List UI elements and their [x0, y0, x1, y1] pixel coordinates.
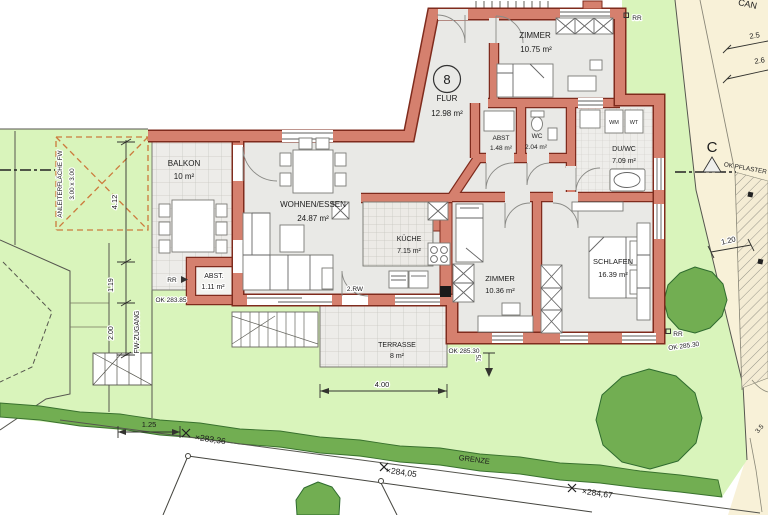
room-area-duwc: 7.09 m²: [612, 158, 636, 165]
dimension-2-5: 2.5: [749, 30, 761, 41]
room-area-abst2: 1.48 m²: [490, 145, 513, 152]
stove-icon: [428, 243, 450, 265]
room-label-wohnen: WOHNEN/ESSEN: [280, 200, 346, 209]
terrasse-floor: [320, 305, 447, 367]
room-label-balkon: BALKON: [168, 159, 201, 168]
door-label-rw: 2.RW: [347, 286, 364, 293]
dimension-1-19: 1.19: [108, 278, 115, 292]
room-label-wc: WC: [532, 133, 543, 140]
tree-icon: [296, 482, 340, 515]
room-area-balkon: 10 m²: [174, 172, 195, 181]
room-area-kueche: 7.15 m²: [397, 248, 421, 255]
dimension-4-12: 4.12: [110, 195, 119, 210]
rr-label-right: RR: [673, 331, 683, 338]
terrace-stair: [232, 312, 318, 347]
elevation-point-3: ×284,67: [581, 486, 613, 500]
wardrobe-icon: [453, 264, 474, 302]
apartment-number: 8: [443, 72, 450, 87]
anleiter-line1: ANLEITERFLÄCHE FW: [56, 150, 64, 217]
room-area-schlafen: 16.39 m²: [598, 270, 628, 279]
dimension-4-00: 4.00: [375, 380, 390, 389]
survey-mark-icon: [757, 259, 763, 265]
room-label-duwc: DU/WC: [612, 146, 636, 153]
room-area-flur: 12.98 m²: [431, 109, 463, 118]
dimension-2-00: 2.00: [108, 326, 115, 340]
wardrobe-icon: [556, 18, 613, 34]
elevation-ok-285-30-a: OK 285.30: [448, 348, 479, 355]
survey-mark-icon: [747, 192, 753, 198]
path-label-fw-zugang: FW-ZUGANG: [134, 310, 141, 353]
column: [440, 286, 451, 297]
room-area-wc: 2.04 m²: [525, 144, 548, 151]
room-label-zimmer2: ZIMMER: [485, 274, 515, 283]
wardrobe-icon: [541, 265, 562, 333]
room-area-zimmer1: 10.75 m²: [520, 45, 552, 54]
room-area-zimmer2: 10.36 m²: [485, 286, 515, 295]
room-label-zimmer1: ZIMMER: [519, 31, 551, 40]
rr-label-left: RR: [167, 277, 177, 284]
room-label-abst2: ABST: [493, 135, 510, 142]
dimension-1-25: 1.25: [142, 420, 157, 429]
appliance-wm: WM: [609, 120, 619, 126]
anleiter-line2: 3.00 x 3.00: [69, 168, 76, 200]
elevation-ok-283-85: OK 283.85: [155, 297, 186, 304]
exterior-stair-fw: [93, 353, 152, 385]
appliance-wt: WT: [630, 120, 639, 126]
room-label-schlafen: SCHLAFEN: [593, 257, 633, 266]
room-area-wohnen: 24.87 m²: [297, 214, 329, 223]
site-plan: 8 BALKON 10 m² WOHNEN/ESSEN 24.87 m² FLU…: [0, 0, 768, 515]
chimney: [583, 1, 602, 9]
dimension-75: 75: [477, 354, 483, 361]
bathtub-icon: [610, 169, 645, 191]
fence-ticks: [476, 1, 548, 8]
room-label-flur: FLUR: [437, 94, 458, 103]
room-label-kueche: KÜCHE: [397, 235, 422, 243]
room-area-terrasse: 8 m²: [390, 353, 405, 360]
floor-plan-drawing: 8 BALKON 10 m² WOHNEN/ESSEN 24.87 m² FLU…: [0, 0, 768, 515]
room-label-terrasse: TERRASSE: [378, 342, 416, 349]
rr-label-top: RR: [632, 15, 642, 22]
dimension-2-6: 2.6: [754, 55, 766, 66]
room-label-abst1: ABST.: [204, 273, 224, 280]
room-area-abst1: 1.11 m²: [201, 284, 225, 291]
section-label-c: C: [707, 139, 718, 156]
